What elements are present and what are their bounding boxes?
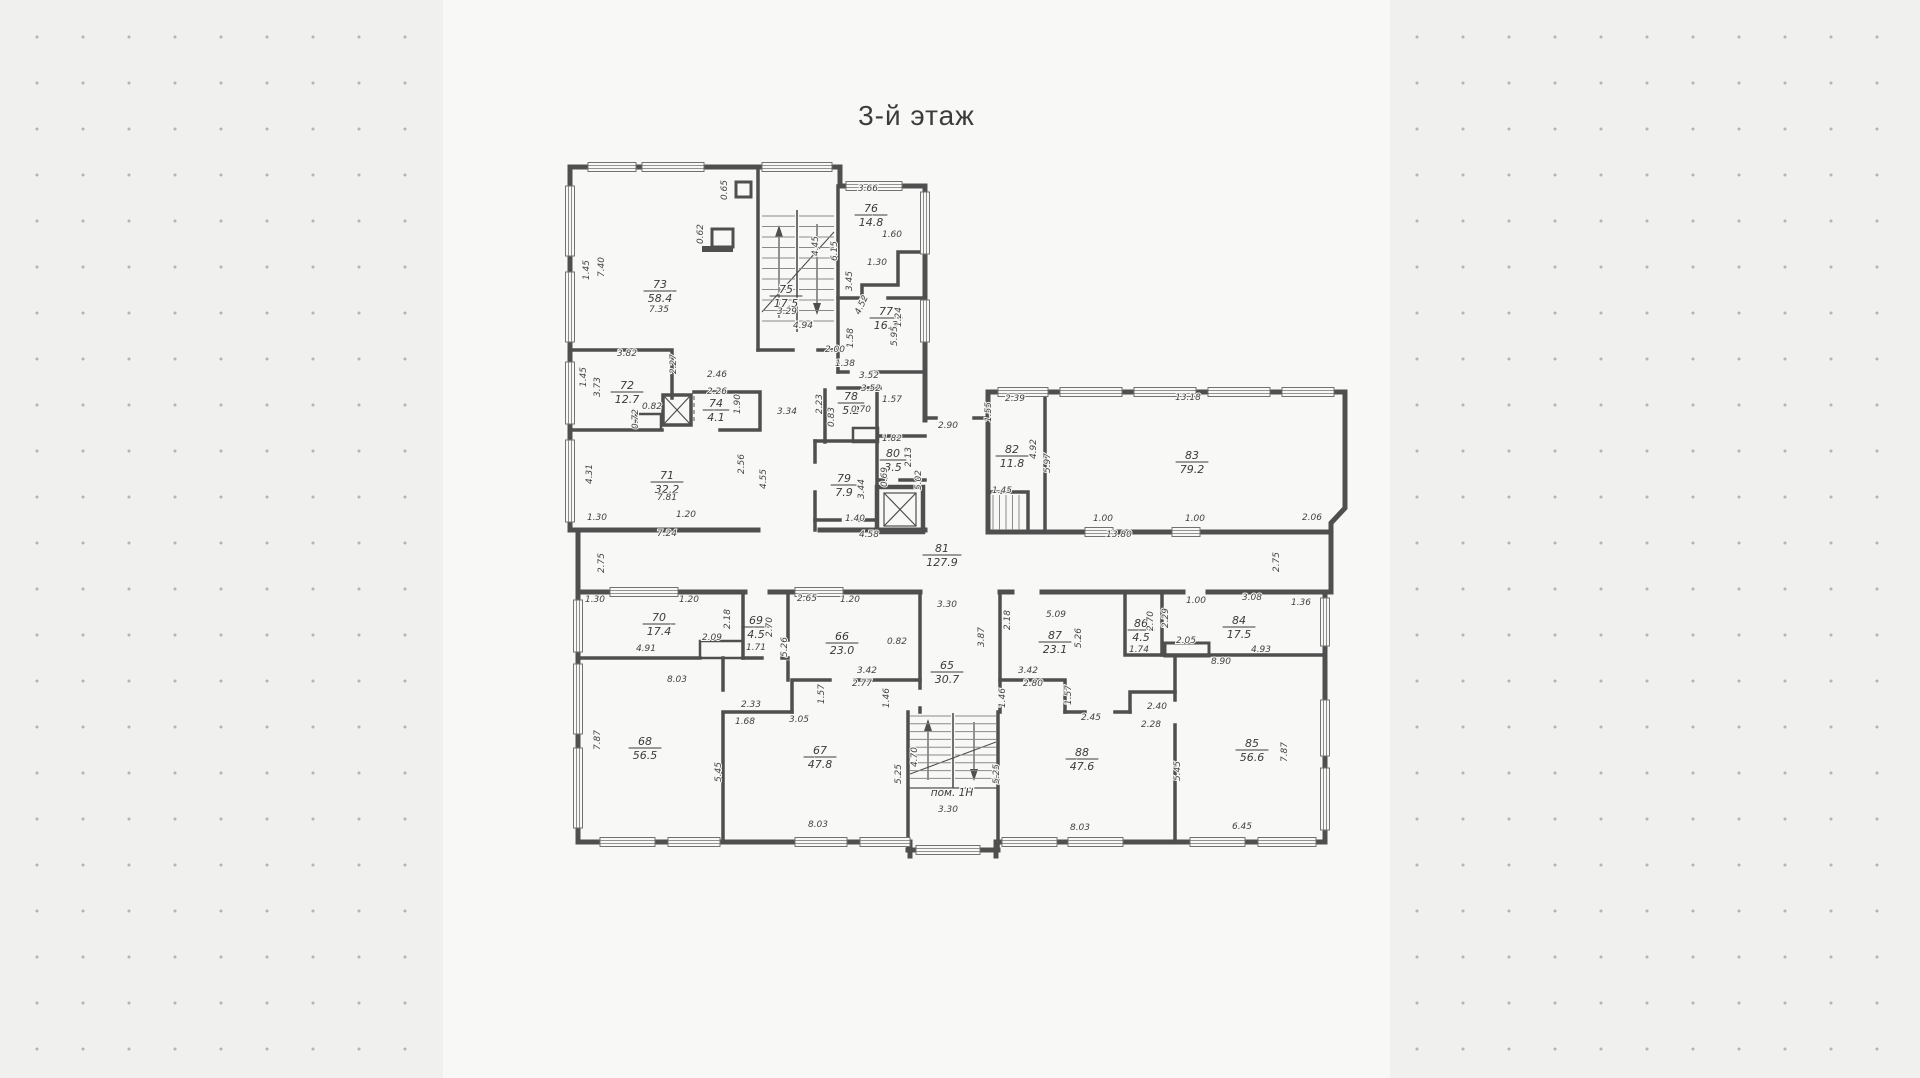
room-area: 4.1: [707, 411, 725, 424]
room-label: 6623.0: [826, 630, 859, 657]
room-label: 81127.9: [923, 542, 962, 569]
dimension-label: 2.26: [707, 387, 727, 397]
dimension-label: 3.30: [938, 805, 958, 815]
room-label: 8211.8: [996, 443, 1029, 470]
dimension-label: 1.46: [882, 688, 892, 708]
window: [1258, 838, 1316, 847]
dimension-label: 2.23: [815, 394, 825, 414]
room-area: 14.8: [859, 216, 884, 229]
room-number: 79: [837, 472, 851, 485]
dimension-label: 1.00: [1186, 596, 1206, 606]
dimension-label: 1.36: [1291, 598, 1311, 608]
dimension-label: 4.92: [1029, 439, 1039, 459]
room-number: 80: [886, 447, 900, 460]
window: [574, 664, 583, 734]
dimension-label: 5.25: [894, 764, 904, 784]
shaft-062: [712, 229, 733, 247]
dimension-label: 7.40: [597, 257, 607, 277]
room-label: 8379.2: [1176, 449, 1209, 476]
dimension-label: 2.28: [1141, 720, 1161, 730]
dimension-label: 1.57: [882, 395, 902, 405]
room-area: 17.5: [1227, 628, 1252, 641]
room-area: 127.9: [926, 556, 958, 569]
dimension-label: 3.34: [777, 407, 797, 417]
dimension-label: 5.45: [714, 762, 724, 782]
window: [1002, 838, 1057, 847]
dimension-label: 1.30: [585, 595, 605, 605]
dimension-label: 8.03: [1070, 823, 1090, 833]
room-number: 74: [709, 397, 723, 410]
window: [566, 440, 575, 522]
dimension-label: 1.38: [835, 359, 855, 369]
room-area: 11.8: [1000, 457, 1025, 470]
dimension-label: 1.55: [984, 402, 994, 422]
window: [921, 192, 930, 254]
dimension-label: 3.82: [617, 349, 637, 359]
dimension-label: 1.90: [733, 394, 743, 414]
windows-layer: [566, 163, 1335, 855]
room-label: 7132.2: [651, 469, 684, 496]
dimension-label: 5.26: [1074, 628, 1084, 648]
room-number: 66: [835, 630, 849, 643]
dimension-label: 3.87: [977, 627, 987, 647]
dimension-label: 3.05: [789, 715, 809, 725]
dimension-label: 1.00: [1093, 514, 1113, 524]
dimension-label: 1.30: [867, 258, 887, 268]
dimension-label: 6.15: [830, 241, 840, 261]
room-number: 77: [879, 305, 893, 318]
dimension-label: 1.58: [846, 328, 856, 348]
room-area: 56.6: [1240, 751, 1265, 764]
room-area: 79.2: [1180, 463, 1205, 476]
dimension-label: 5.95: [890, 326, 900, 346]
room-area: 12.7: [615, 393, 640, 406]
room-area: 47.6: [1070, 760, 1095, 773]
dimension-label: 1.24: [894, 307, 904, 327]
room-number: 82: [1005, 443, 1019, 456]
window: [921, 300, 930, 342]
dimension-label: 2.77: [852, 679, 872, 689]
room-area: 17.4: [647, 625, 672, 638]
dimension-label: 4.55: [759, 469, 769, 489]
floor-plan-drawing: 7358.47517.57614.87716.37212.7744.17132.…: [0, 0, 1920, 1078]
window: [1321, 700, 1330, 756]
room-number: 69: [749, 614, 763, 627]
dimension-label: 2.18: [1003, 610, 1013, 630]
dimension-label: 7.87: [593, 730, 603, 750]
window: [566, 272, 575, 342]
dimension-label: 5.09: [1046, 610, 1066, 620]
dimension-label: 2.05: [1176, 636, 1196, 646]
dimension-label: 8.90: [1211, 657, 1231, 667]
dimension-label: 3.52: [861, 384, 881, 394]
room-label: 7017.4: [643, 611, 676, 638]
window: [1190, 838, 1245, 847]
stairs-upper-arrows: [762, 210, 834, 332]
dimension-label: 3.52: [859, 371, 879, 381]
room-number: 76: [864, 202, 878, 215]
room-number: 75: [779, 283, 793, 296]
dimension-label: 2.80: [1023, 679, 1043, 689]
window: [762, 163, 832, 172]
dimension-label: 7.24: [657, 529, 677, 539]
labels-layer: 7358.47517.57614.87716.37212.7744.17132.…: [579, 180, 1322, 833]
dimension-label: 5.02: [914, 470, 924, 490]
dimension-label: 1.71: [746, 643, 766, 653]
dimension-label: 2.90: [938, 421, 958, 431]
dimension-label: 1.30: [587, 513, 607, 523]
room-area: 23.1: [1043, 643, 1068, 656]
room-number: 73: [653, 278, 667, 291]
window: [1208, 388, 1270, 397]
room-label: 6747.8: [804, 744, 837, 771]
niche-209: [700, 641, 743, 658]
dimension-label: 4.70: [910, 747, 920, 767]
dimension-label: 5.25: [992, 764, 1002, 784]
elevator-icon-2: [877, 487, 923, 532]
dimension-label: 3.73: [593, 377, 603, 397]
dimension-label: 2.70: [765, 617, 775, 637]
stair-room-label: пом. 1Н: [931, 787, 974, 799]
dimension-label: 2.65: [797, 594, 817, 604]
dimension-label: 4.31: [585, 464, 595, 484]
window: [574, 600, 583, 652]
dimension-label: 1.20: [676, 510, 696, 520]
room-area: 56.5: [633, 749, 658, 762]
room-number: 83: [1185, 449, 1199, 462]
dimension-label: 4.94: [793, 321, 813, 331]
dimension-label: 2.46: [707, 370, 727, 380]
window: [1282, 388, 1334, 397]
window: [566, 362, 575, 424]
window: [600, 838, 655, 847]
dimension-label: 1.45: [992, 486, 1012, 496]
dimension-label: 3.44: [857, 479, 867, 499]
dimension-label: 0.72: [631, 409, 641, 429]
room-area: 47.8: [808, 758, 833, 771]
dimension-label: 7.87: [1280, 742, 1290, 762]
window: [1060, 388, 1122, 397]
room-number: 87: [1048, 629, 1062, 642]
window: [668, 838, 720, 847]
window: [1321, 768, 1330, 830]
window: [574, 748, 583, 828]
dimension-label: 2.70: [1146, 611, 1156, 631]
dimension-label: 1.40: [845, 514, 865, 524]
window: [1172, 528, 1200, 537]
dimension-label: 2.00: [825, 345, 845, 355]
dimension-label: 2.39: [1005, 394, 1025, 404]
room-number: 84: [1232, 614, 1246, 627]
room-label: 744.1: [703, 397, 730, 424]
screenshot-stage: 3-й этаж: [0, 0, 1920, 1078]
dimension-label: 4.45: [811, 236, 821, 256]
dimension-label: 2.13: [904, 447, 914, 467]
room-number: 85: [1245, 737, 1259, 750]
dimension-label: 1.57: [817, 684, 827, 704]
room-number: 72: [620, 379, 634, 392]
dimension-label: 3.42: [1018, 666, 1038, 676]
shaft-062-base: [702, 246, 733, 252]
room-number: 65: [940, 659, 954, 672]
dimension-label: 0.70: [851, 405, 871, 415]
room-number: 70: [652, 611, 666, 624]
dimension-label: 3.30: [937, 600, 957, 610]
room-number: 68: [638, 735, 652, 748]
room-label: 797.9: [831, 472, 858, 499]
room-label: 6856.5: [629, 735, 662, 762]
room-label: 7212.7: [611, 379, 644, 406]
dimension-label: 5.97: [1043, 453, 1053, 473]
dimension-label: 13.18: [1175, 393, 1201, 403]
dimension-label: 13.80: [1106, 530, 1132, 540]
dimension-label: 2.75: [1272, 552, 1282, 572]
dimension-label: 4.91: [636, 644, 656, 654]
dimension-label: 3.45: [845, 271, 855, 291]
room-label: 7358.4: [644, 278, 677, 305]
dimension-label: 8.03: [808, 820, 828, 830]
dimension-label: 4.93: [1251, 645, 1271, 655]
room-label: 8556.6: [1236, 737, 1269, 764]
dimension-label: 1.20: [840, 595, 860, 605]
room-number: 67: [813, 744, 827, 757]
dimension-label: 2.27: [669, 354, 679, 374]
shaft-065: [736, 182, 751, 197]
room-label: 8847.6: [1066, 746, 1099, 773]
dimension-label: 0.62: [696, 224, 706, 244]
dimension-label: 0.82: [887, 637, 907, 647]
room-label: 7614.8: [855, 202, 888, 229]
room-number: 88: [1075, 746, 1089, 759]
dimension-label: 5.26: [780, 637, 790, 657]
dimension-label: 1.60: [882, 230, 902, 240]
dimension-label: 2.33: [741, 700, 761, 710]
dimension-label: 1.46: [998, 688, 1008, 708]
room-label: 8417.5: [1223, 614, 1256, 641]
dimension-label: 7.81: [657, 493, 677, 503]
dimension-label: 0.83: [827, 407, 837, 427]
window: [860, 838, 910, 847]
dimension-label: 2.45: [1081, 713, 1101, 723]
room-label: 6530.7: [931, 659, 964, 686]
dimension-label: 1.68: [735, 717, 755, 727]
dimension-label: 2.18: [723, 609, 733, 629]
window: [1321, 598, 1330, 646]
dimension-label: 1.74: [1129, 645, 1149, 655]
dimension-label: 1.82: [882, 434, 902, 444]
dimension-label: 6.45: [1232, 822, 1252, 832]
window: [795, 838, 847, 847]
dimension-label: 2.56: [737, 454, 747, 474]
room-area: 58.4: [648, 292, 673, 305]
room-number: 81: [935, 542, 949, 555]
dimension-label: 0.82: [642, 402, 662, 412]
dimension-label: 5.45: [1173, 761, 1183, 781]
dimension-label: 2.75: [597, 553, 607, 573]
room-number: 71: [660, 469, 674, 482]
window: [1068, 838, 1123, 847]
dimension-label: 8.03: [667, 675, 687, 685]
elevator-icon-1: [663, 395, 694, 425]
room-area: 30.7: [935, 673, 960, 686]
dimension-label: 1.20: [679, 595, 699, 605]
window: [588, 163, 636, 172]
window: [642, 163, 704, 172]
window: [610, 588, 678, 597]
dimension-label: 3.08: [1242, 593, 1262, 603]
room-area: 4.5: [747, 628, 765, 641]
dimension-label: 2.29: [1161, 608, 1171, 628]
dimension-label: 2.40: [1147, 702, 1167, 712]
dimension-label: 4.58: [859, 530, 879, 540]
window: [566, 186, 575, 256]
dimension-label: 2.09: [702, 633, 722, 643]
room-area: 23.0: [830, 644, 855, 657]
room-area: 4.5: [1132, 631, 1150, 644]
dimension-label: 1.57: [1064, 685, 1074, 705]
room-label: 8723.1: [1039, 629, 1072, 656]
room-number: 78: [844, 390, 858, 403]
dimension-label: 1.45: [582, 260, 592, 280]
window: [916, 846, 980, 855]
dimension-label: 1.45: [579, 367, 589, 387]
dimension-label: 2.06: [1302, 513, 1322, 523]
dimension-label: 3.29: [777, 307, 797, 317]
dimension-label: 1.00: [1185, 514, 1205, 524]
dimension-label: 0.69: [880, 467, 890, 487]
dimension-label: 0.65: [720, 180, 730, 200]
dimension-label: 3.42: [857, 666, 877, 676]
room-area: 7.9: [835, 486, 853, 499]
dimension-label: 7.35: [649, 305, 669, 315]
dimension-label: 3.66: [858, 184, 878, 194]
